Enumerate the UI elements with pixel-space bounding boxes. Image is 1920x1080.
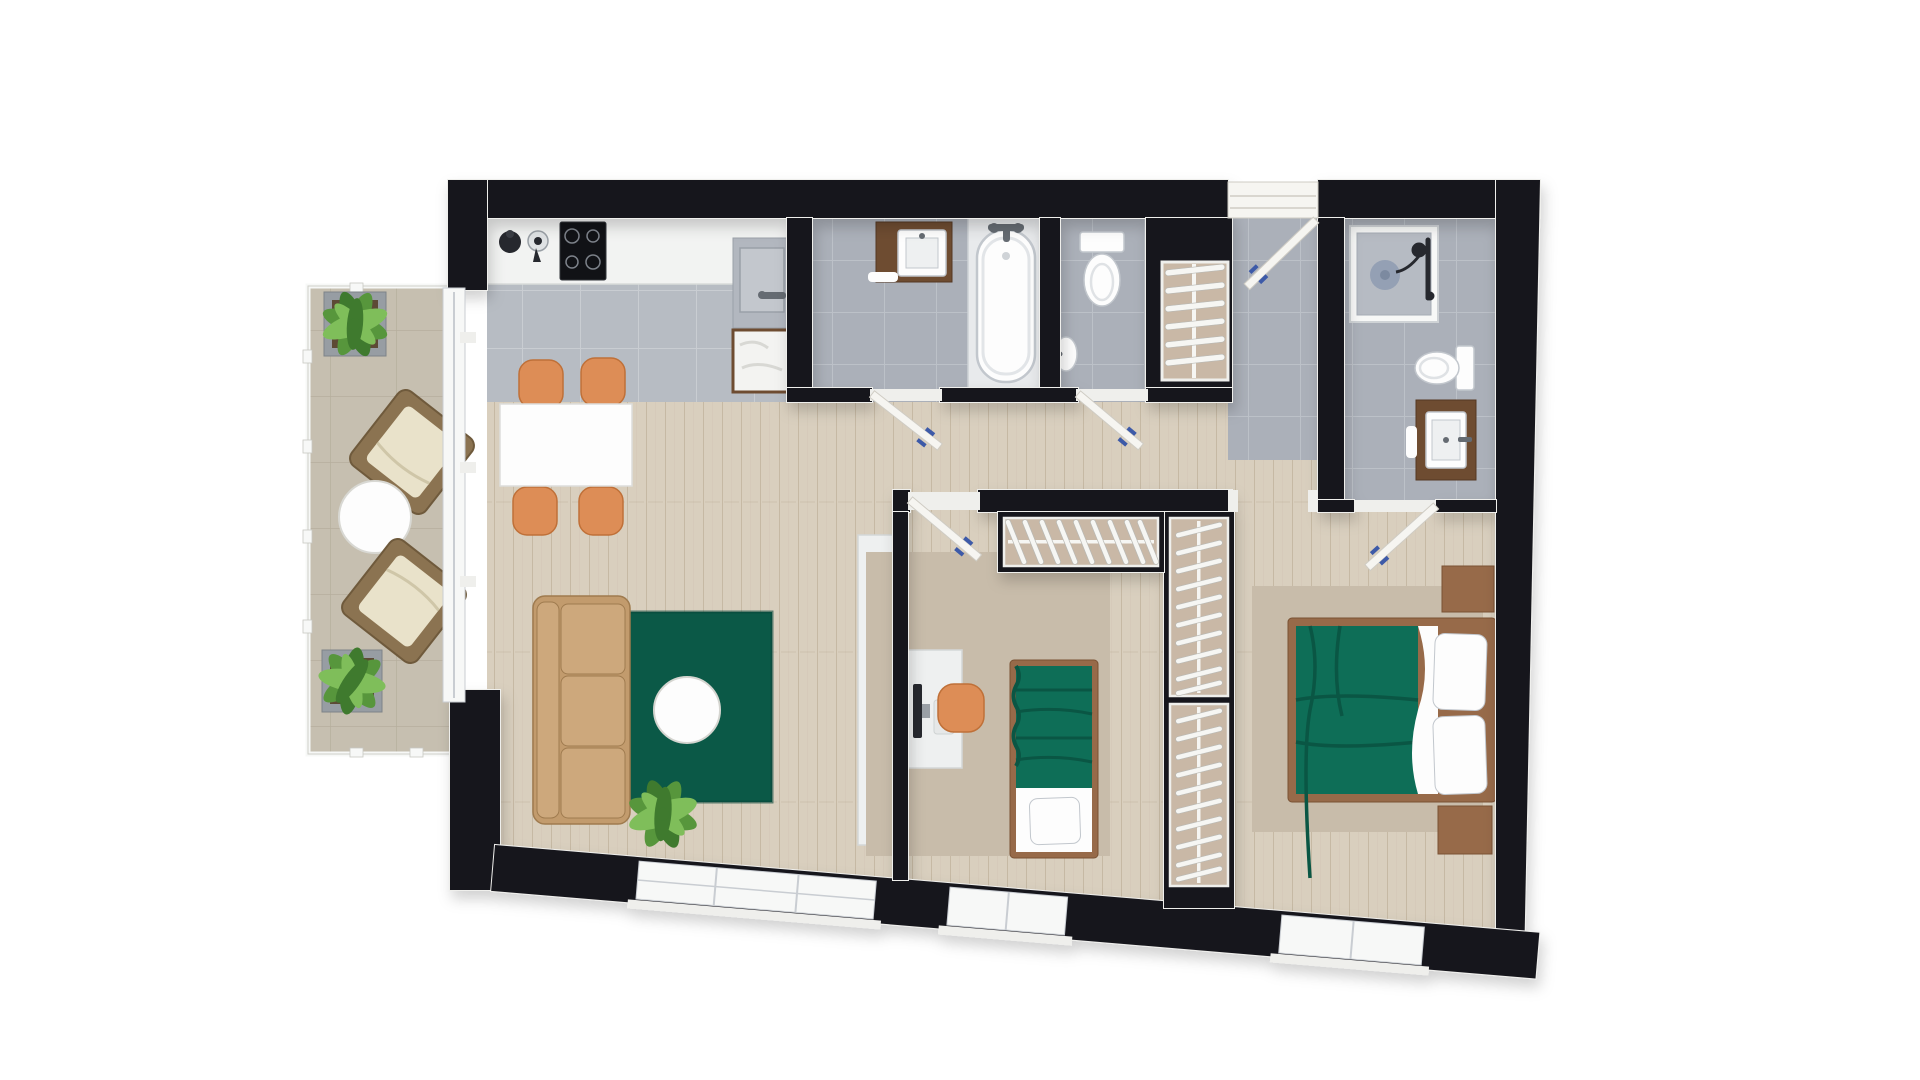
wc-hall-wall [1146,388,1232,402]
master-entry-post-right [1308,490,1318,512]
sink-basin [906,238,938,268]
bathtub [968,218,1042,394]
ensuite-door-threshold [1354,500,1436,512]
coffee-table [654,677,720,743]
kitchen-bathroom-wall [787,218,812,402]
induction-hob [560,222,606,280]
entry-ensuite-wall [1318,218,1344,512]
ensuite-bedroom-wall-a [1318,500,1354,512]
nightstand [1442,566,1494,612]
bedroom-master [1252,566,1496,878]
dining-table [500,404,632,486]
balcony-sliding-door [443,288,476,702]
pillow [1029,797,1081,845]
faucet-icon [1458,437,1472,442]
faucet-icon [919,233,925,239]
bathroom-hall-wall-b [940,388,1078,402]
left-wall-lower [450,690,500,890]
dining-chair [579,487,623,535]
top-wall-left-section [448,180,1228,218]
towel [868,272,898,282]
bedroom-wall-a [893,490,910,512]
entry-tile-floor [1228,218,1318,460]
pillow [1433,633,1488,711]
sofa-cushion [561,604,625,674]
dining-chair [513,487,557,535]
ensuite-bedroom-wall-b [1436,500,1496,512]
bathroom-hall-wall-a [787,388,872,402]
bedroom-small-wardrobe [1004,518,1159,566]
right-wall [1496,180,1540,965]
entrance-threshold [1228,182,1318,218]
washing-machine [733,330,790,392]
towel [1406,426,1417,458]
bath-drain [1002,252,1010,260]
bedroom-wall-b [978,490,1232,512]
bathroom-vanity [868,222,952,282]
single-bed [1010,660,1098,858]
tv-partition-wall [893,512,908,880]
ensuite-vanity [1406,400,1476,480]
bathroom-wc-wall [1040,218,1060,402]
shower [1350,226,1438,322]
sofa-cushion [561,676,625,746]
pillow [1433,715,1488,795]
dining-chair [519,360,563,408]
toilet [1080,232,1124,306]
floor-plan-render [0,0,1920,1080]
sofa [533,596,630,824]
master-entry-post-left [1228,490,1238,512]
balcony-planter-top [319,288,390,359]
monitor-icon [913,684,922,738]
kitchen-sink-counter [733,238,790,328]
hall-closet-shelving [1162,262,1228,380]
dining-chair [581,358,625,406]
sofa-cushion [561,748,625,818]
left-wall-upper [448,180,487,290]
desk-stool [938,684,984,732]
nightstand [1438,806,1492,854]
